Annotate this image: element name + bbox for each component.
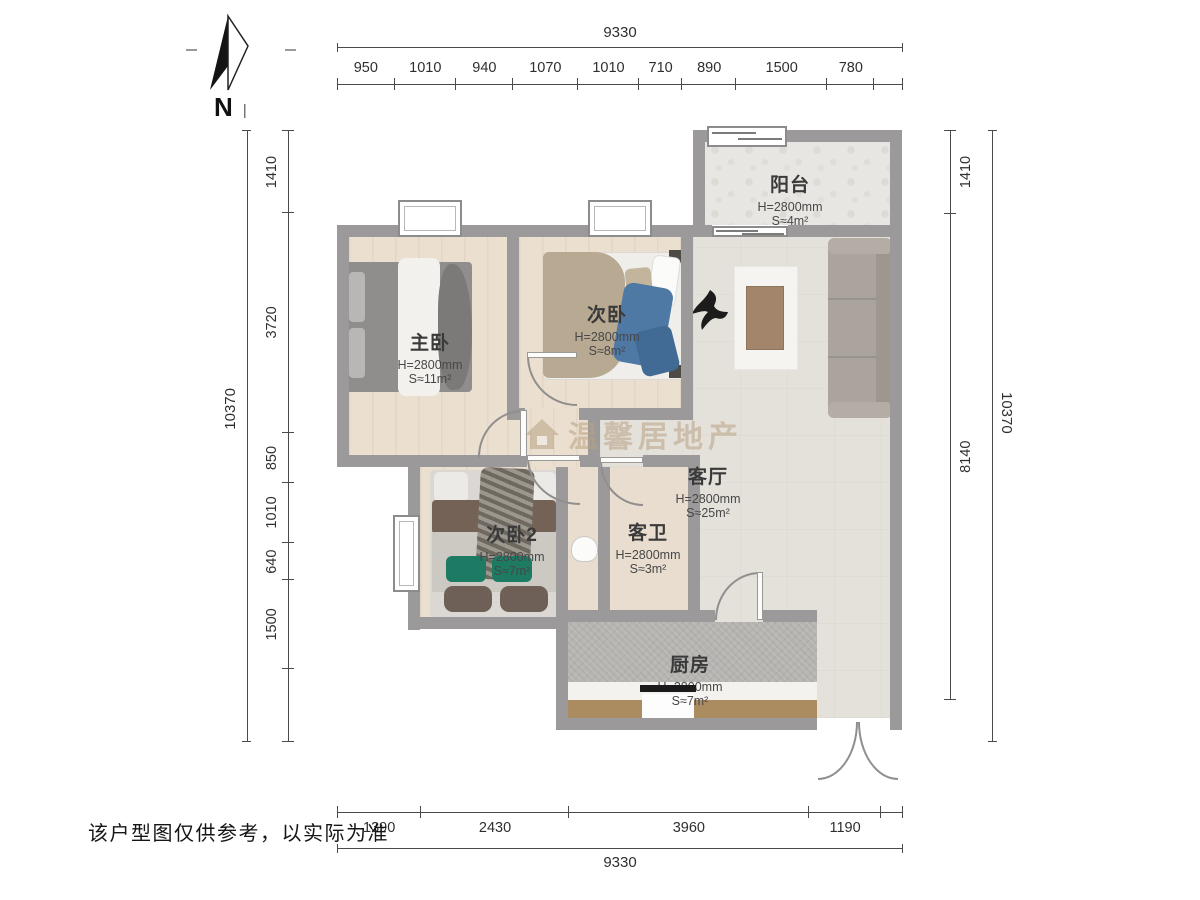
floorplan: 阳台 H=2800mm S≈4m² 主卧 H=2800mm S≈11m² 次卧 … — [0, 0, 1200, 900]
room-area: S≈11m² — [360, 372, 500, 386]
sliding-pane-line — [742, 233, 784, 235]
room-label-bath: 客卫 H=2800mm S≈3m² — [578, 518, 718, 576]
room-label-balcony: 阳台 H=2800mm S≈4m² — [720, 170, 860, 228]
wall — [693, 142, 705, 237]
north-label: N — [214, 92, 233, 122]
dim-value: 850 — [262, 433, 282, 483]
dim-value: 1500 — [262, 580, 282, 669]
room-height: H=2800mm — [360, 358, 500, 372]
wall — [556, 718, 817, 730]
dim-value: 640 — [262, 543, 282, 581]
coffee-table — [746, 286, 784, 350]
sliding-pane-line — [716, 230, 758, 232]
disclaimer-text: 该户型图仅供参考，以实际为准 — [88, 817, 389, 846]
wall — [408, 455, 420, 515]
dim-value: 1070 — [529, 58, 561, 78]
dim-bottom-total: 9330 — [337, 854, 903, 871]
dim-line — [992, 130, 993, 742]
room-name: 客卫 — [578, 518, 718, 545]
dim-line — [337, 848, 903, 849]
dim-top-segments: 950 1010 940 1070 1010 710 890 1500 780 — [337, 58, 903, 90]
room-name: 阳台 — [720, 170, 860, 197]
dim-value: 3720 — [262, 213, 282, 433]
dim-left-total: 10370 — [222, 388, 239, 430]
dim-tick — [242, 741, 251, 742]
dim-tick — [988, 741, 997, 742]
dim-value: 1410 — [262, 130, 282, 213]
wall — [763, 610, 817, 622]
dim-value: 1410 — [956, 130, 976, 214]
dim-line — [247, 130, 248, 742]
room-height: H=2800mm — [442, 550, 582, 564]
entry-door-arc-left — [818, 722, 858, 780]
dim-value: 1010 — [592, 58, 624, 78]
room-name: 主卧 — [360, 328, 500, 355]
room-area: S≈7m² — [620, 694, 760, 708]
window-bedroom2 — [588, 200, 652, 237]
wall — [337, 225, 349, 467]
bedroom3-brown-pillow — [500, 586, 548, 612]
dim-right-total: 10370 — [998, 392, 1015, 434]
room-label-master: 主卧 H=2800mm S≈11m² — [360, 328, 500, 386]
sofa-seam — [828, 298, 876, 300]
room-height: H=2800mm — [578, 548, 718, 562]
sofa-seam — [828, 356, 876, 358]
kitchen-cooktop — [640, 685, 696, 692]
dim-value: 2430 — [479, 818, 511, 838]
wall — [681, 237, 693, 408]
bedroom3-brown-pillow — [444, 586, 492, 612]
sliding-pane-line — [738, 138, 782, 140]
wall — [890, 130, 902, 730]
wall — [408, 617, 568, 629]
north-arrow-icon: N — [186, 12, 296, 122]
door-leaf-master — [520, 410, 527, 457]
entry-door-arc-right — [858, 722, 898, 780]
dim-value: 1500 — [766, 58, 798, 78]
door-leaf-bathroom — [600, 457, 643, 463]
room-name: 次卧2 — [442, 520, 582, 547]
room-area: S≈7m² — [442, 564, 582, 578]
dim-top-total: 9330 — [337, 24, 903, 41]
room-label-bedroom2: 次卧 H=2800mm S≈8m² — [537, 300, 677, 358]
dim-value: 3960 — [673, 818, 705, 838]
wall — [588, 408, 600, 467]
dim-line — [337, 47, 903, 48]
window-frame — [594, 206, 646, 231]
dim-value: 890 — [697, 58, 721, 78]
wall — [507, 237, 519, 420]
wall — [693, 225, 712, 237]
dim-value: 1190 — [829, 818, 860, 838]
dim-value: 8140 — [956, 214, 976, 700]
room-area: S≈4m² — [720, 214, 860, 228]
sofa-armrest — [828, 402, 892, 418]
sliding-pane-line — [712, 132, 756, 134]
window-bedroom3 — [393, 515, 420, 592]
dim-value: 940 — [472, 58, 496, 78]
dim-value: 950 — [354, 58, 378, 78]
room-name: 次卧 — [537, 300, 677, 327]
room-height: H=2800mm — [537, 330, 677, 344]
dim-value: 1010 — [262, 483, 282, 543]
dim-tick — [902, 844, 903, 853]
dim-tick — [337, 43, 338, 52]
master-bed-pillow — [349, 272, 365, 322]
dim-value: 710 — [649, 58, 673, 78]
plant-decor — [690, 288, 730, 332]
dim-right-segments: 1410 8140 — [944, 130, 976, 700]
dim-value: 780 — [839, 58, 863, 78]
room-area: S≈8m² — [537, 344, 677, 358]
room-name: 厨房 — [620, 650, 760, 677]
wall — [556, 610, 715, 622]
dim-tick — [902, 43, 903, 52]
room-height: H=2800mm — [638, 492, 778, 506]
window-frame — [399, 521, 414, 586]
window-balcony — [707, 126, 787, 147]
room-label-kitchen: 厨房 H=2800mm S≈7m² — [620, 650, 760, 708]
room-height: H=2800mm — [720, 200, 860, 214]
room-label-living: 客厅 H=2800mm S≈25m² — [638, 462, 778, 520]
dim-value: 1010 — [409, 58, 441, 78]
room-area: S≈3m² — [578, 562, 718, 576]
wall — [556, 610, 568, 730]
window-frame — [404, 206, 456, 231]
dim-bottom-segments: 1390 2430 3960 1190 — [337, 806, 903, 838]
room-label-bedroom3: 次卧2 H=2800mm S≈7m² — [442, 520, 582, 578]
room-name: 客厅 — [638, 462, 778, 489]
sofa-armrest — [828, 238, 892, 254]
door-leaf-kitchen — [757, 572, 763, 620]
window-master — [398, 200, 462, 237]
dim-tick — [242, 130, 251, 131]
bedroom3-pillow — [434, 472, 468, 502]
dim-left-segments: 1410 3720 850 1010 640 1500 — [262, 130, 294, 742]
door-leaf-bedroom3 — [527, 455, 580, 461]
dim-tick — [988, 130, 997, 131]
